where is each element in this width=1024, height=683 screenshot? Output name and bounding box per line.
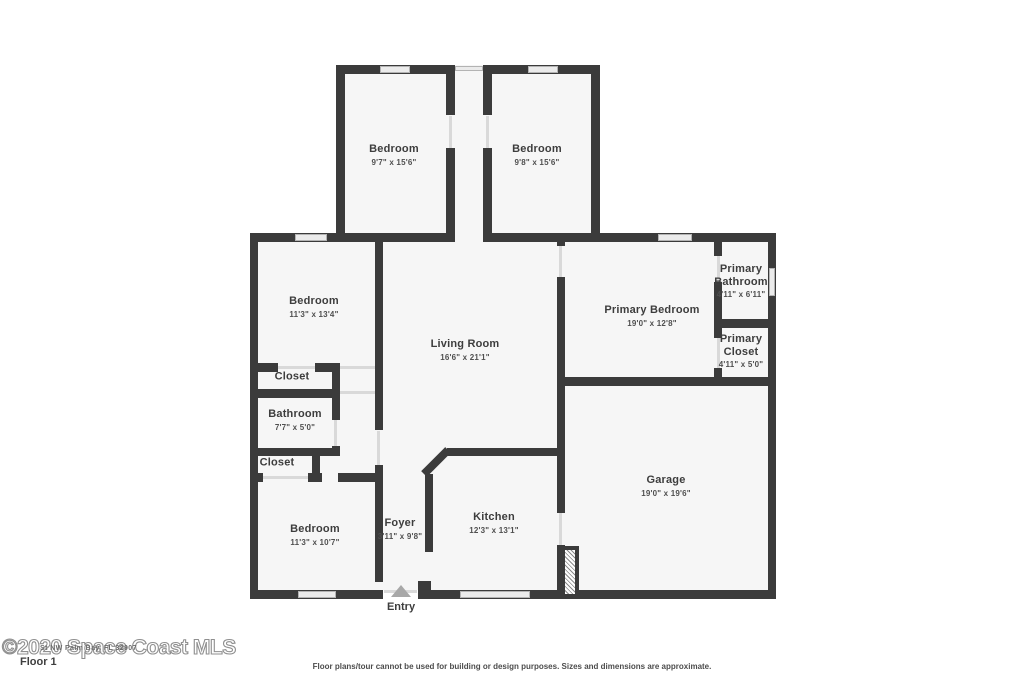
wall [446,148,455,242]
room-label-closet-lower: Closet [260,457,295,470]
door-opening [559,246,562,277]
room-label-bedroom-bottom: Bedroom11'3" x 10'7" [290,523,340,547]
room-label-living-room: Living Room16'6" x 21'1" [431,338,500,362]
room-label-bedroom-top-left: Bedroom9'7" x 15'6" [369,143,419,167]
wall [418,581,431,599]
door-opening [334,420,337,446]
room-dims: 12'3" x 13'1" [469,526,519,535]
wall [591,65,600,242]
door-opening [559,513,562,545]
room-name: Foyer [378,517,423,530]
room-name: Garage [641,474,691,487]
water-heater-hatch [561,546,579,598]
wall [714,319,776,328]
room-dims: 4'11" x 6'11" [709,290,773,299]
floor-plan-canvas: Entry ©2020 Space Coast MLS St NW Palm B… [0,0,1024,683]
room-dims: 3'11" x 9'8" [378,532,423,541]
window [658,234,692,241]
wall [483,148,492,242]
wall [447,448,564,456]
window [298,591,336,598]
disclaimer-text: Floor plans/tour cannot be used for buil… [0,662,1024,671]
wall [250,233,776,242]
room-name: Kitchen [469,511,519,524]
door-opening [486,116,489,148]
room-label-primary-closet: Primary Closet4'11" x 5'0" [709,333,773,369]
room-name: Primary Closet [709,333,773,358]
room-name: Bedroom [290,523,340,536]
room-name: Bedroom [289,295,339,308]
room-label-bedroom-top-right: Bedroom9'8" x 15'6" [512,143,562,167]
wall [375,242,383,430]
entry-label: Entry [387,601,415,613]
opening [455,233,483,242]
window [295,234,327,241]
room-label-primary-bathroom: Primary Bathroom4'11" x 6'11" [709,263,773,299]
wall [336,65,345,242]
wall [250,448,340,456]
door-opening [449,116,452,148]
room-dims: 4'11" x 5'0" [709,360,773,369]
room-label-closet-upper: Closet [275,371,310,384]
door-opening [278,366,315,369]
room-name: Closet [275,371,310,384]
room-name: Primary Bedroom [604,304,699,317]
room-dims: 11'3" x 10'7" [290,538,340,547]
room-label-primary-bedroom: Primary Bedroom19'0" x 12'8" [604,304,699,328]
room-name: Bedroom [512,143,562,156]
window [455,66,483,71]
room-dims: 9'8" x 15'6" [512,158,562,167]
room-label-kitchen: Kitchen12'3" x 13'1" [469,511,519,535]
wall [446,65,455,115]
wall [557,277,565,378]
window [380,66,410,73]
room-name: Primary Bathroom [709,263,773,288]
room-label-foyer: Foyer3'11" x 9'8" [378,517,423,541]
window [528,66,558,73]
room-name: Closet [260,457,295,470]
wall [714,242,722,256]
room-label-bathroom: Bathroom7'7" x 5'0" [268,408,322,432]
wall [714,368,722,383]
room-dims: 7'7" x 5'0" [268,423,322,432]
room-name: Bathroom [268,408,322,421]
door-opening [263,476,308,479]
opening [322,473,338,482]
wall [557,238,565,246]
room-name: Living Room [431,338,500,351]
wall [250,389,340,398]
wall [557,386,565,513]
room-label-garage: Garage19'0" x 19'6" [641,474,691,498]
door-opening [340,391,375,394]
room-dims: 11'3" x 13'4" [289,310,339,319]
room-dims: 19'0" x 12'8" [604,319,699,328]
address-overlay: St NW Palm Bay, FL 32907 [40,645,137,652]
window [460,591,530,598]
room-dims: 19'0" x 19'6" [641,489,691,498]
wall [557,377,776,386]
wall [250,233,258,598]
entry-arrow-icon [391,585,411,597]
room-label-bedroom-left: Bedroom11'3" x 13'4" [289,295,339,319]
room-dims: 9'7" x 15'6" [369,158,419,167]
room-dims: 16'6" x 21'1" [431,353,500,362]
door-opening [340,366,375,369]
room-name: Bedroom [369,143,419,156]
wall [483,65,492,115]
wall [425,474,433,552]
door-opening [377,431,380,465]
